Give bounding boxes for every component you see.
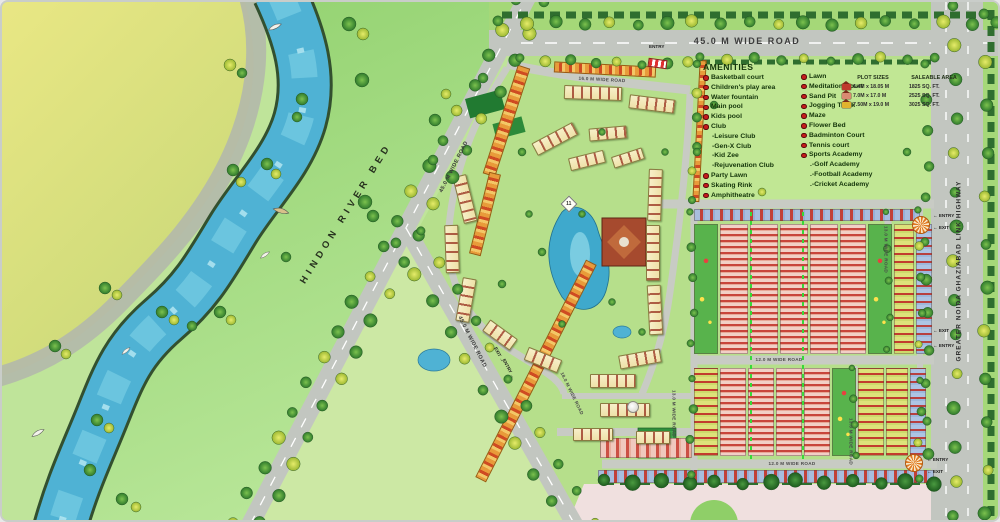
tree-icon (921, 379, 930, 388)
tree-icon (272, 431, 286, 445)
tree-icon (553, 459, 563, 469)
entry-sunburst-icon (912, 216, 930, 234)
legend-item: Party Lawn (703, 171, 801, 181)
tree-icon (287, 407, 297, 417)
tree-icon (763, 474, 779, 490)
legend-item: Tennis court (801, 141, 899, 151)
pocket-park (694, 224, 718, 354)
legend-item-label: Kids pool (711, 112, 742, 122)
tree-icon (604, 17, 615, 28)
legend-item-label: Basketball court (711, 73, 764, 83)
legend-item-label: Sand Pit (809, 92, 836, 102)
tree-icon (296, 93, 308, 105)
tree-icon (981, 239, 991, 249)
apartment-cluster (589, 125, 628, 141)
tree-icon (855, 17, 867, 29)
legend-item: -Kid Zee (703, 151, 801, 161)
tree-icon (707, 475, 720, 488)
river-label: HINDON RIVER BED (294, 134, 399, 292)
tree-icon (599, 129, 606, 136)
tree-icon (482, 49, 495, 62)
legend-item: -Leisure Club (703, 132, 801, 142)
tree-icon (951, 113, 963, 125)
tree-icon (538, 248, 546, 256)
legend-item: Skating Rink (703, 181, 801, 191)
tree-icon (924, 345, 934, 355)
entry-exit-label: ← ENTRY (933, 343, 954, 348)
tree-icon (598, 474, 610, 486)
legend-item: Water fountain (703, 93, 801, 103)
tree-icon (391, 215, 403, 227)
tree-icon (916, 273, 924, 281)
outside-south-strip (562, 484, 947, 522)
road-12m-south-label: 12.0 M WIDE ROAD (752, 461, 832, 466)
plot-band (694, 224, 932, 354)
tree-icon (638, 61, 647, 69)
tree-icon (948, 2, 958, 11)
legend-item-label: Main pool (711, 102, 743, 112)
tree-icon (345, 295, 359, 309)
tree-icon (495, 86, 507, 98)
tree-icon (169, 315, 179, 325)
top-road-label: 45.0 M WIDE ROAD (667, 36, 827, 46)
apartment-cluster (590, 374, 636, 388)
tree-icon (271, 169, 281, 179)
tree-icon (683, 57, 694, 68)
tree-icon (227, 518, 238, 522)
apartment-cluster (647, 285, 664, 336)
tree-icon (983, 465, 993, 475)
tree-icon (788, 472, 803, 487)
amenities-header: AMENITIES (703, 62, 801, 72)
legend-item-label: -Kid Zee (712, 151, 739, 161)
apartment-cluster (564, 85, 622, 101)
tree-icon (947, 510, 958, 521)
tree-icon (979, 9, 989, 19)
legend-item-label: Tennis court (809, 141, 849, 151)
tree-icon (399, 257, 410, 268)
tree-icon (516, 54, 525, 63)
tree-icon (478, 385, 488, 395)
tree-icon (826, 19, 839, 32)
tree-icon (930, 53, 939, 62)
tree-icon (693, 60, 701, 68)
tree-icon (591, 58, 601, 68)
legend-item-label: Amphitheatre (711, 191, 755, 201)
tree-icon (485, 343, 494, 352)
legend-item: Kids pool (703, 112, 801, 122)
south-wedge-field (244, 230, 581, 522)
tree-icon (451, 105, 462, 116)
plot-column (750, 224, 778, 354)
tree-icon (937, 15, 951, 29)
apartment-cluster (636, 431, 670, 444)
legend-item: -Gen-X Club (703, 142, 801, 152)
tree-icon (292, 112, 302, 122)
legend-item-label: Flower Bed (809, 121, 846, 131)
building-11-marker: 11 (561, 196, 578, 213)
tree-icon (521, 400, 532, 411)
tree-icon (915, 341, 922, 348)
rowhouse-strip (483, 65, 531, 177)
tree-icon (469, 79, 481, 91)
lagoon-pool (549, 207, 609, 309)
plot-column (858, 368, 884, 456)
plot-column (886, 368, 908, 456)
amenities-legend-col1: AMENITIES Basketball courtChildren's pla… (703, 62, 801, 200)
legend-item-label: Badminton Court (809, 131, 865, 141)
road-12m-mid-label: 12.0 M WIDE ROAD (739, 357, 819, 362)
tree-icon (687, 243, 696, 252)
entry-exit-label: ENTRY → (501, 358, 515, 379)
legend-bullet-icon (703, 173, 709, 179)
legend-bullet-icon (703, 75, 709, 81)
tree-icon (438, 136, 448, 146)
legend-item-label: Sports Academy (809, 150, 862, 160)
tree-icon (509, 54, 522, 67)
plot-column (720, 224, 748, 354)
apartment-cluster (452, 174, 477, 224)
tree-icon (237, 68, 247, 78)
tree-icon (689, 404, 698, 413)
entry-exit-label: ← ENTRY (927, 457, 948, 462)
tree-icon (827, 57, 836, 66)
tree-icon (686, 435, 694, 443)
tree-icon (61, 349, 71, 359)
clubhouse (602, 218, 646, 266)
legend-item-label: .-Cricket Academy (810, 180, 869, 190)
tree-icon (273, 489, 286, 502)
legend-item: Basketball court (703, 73, 801, 83)
tree-icon (918, 309, 926, 317)
building-11-number: 11 (566, 201, 571, 207)
tree-icon (559, 321, 566, 328)
tree-icon (99, 282, 111, 294)
plot-column (910, 368, 926, 456)
tree-icon (927, 477, 942, 492)
tree-icon (300, 377, 311, 388)
legend-item: .-Football Academy (801, 170, 899, 180)
tree-icon (365, 271, 375, 281)
plot-sizes-table: PLOT SIZES SALEABLE AREA 6.4M x 18.05 M1… (842, 75, 964, 108)
house-icon (842, 102, 851, 108)
tree-icon (518, 148, 526, 156)
tree-icon (498, 280, 506, 288)
boat-icon (273, 206, 290, 215)
plot-column (600, 438, 692, 458)
tree-icon (690, 309, 698, 317)
river-bed-green (62, 2, 522, 522)
tree-icon (303, 432, 313, 442)
road-13m-west-label: 13.0 M WIDE ROAD (672, 374, 677, 454)
apartment-cluster (611, 147, 645, 168)
road-18m-label: 18.0 M WIDE ROAD (552, 356, 592, 430)
saleable-area-header: SALEABLE AREA (904, 75, 964, 81)
tree-icon (540, 56, 551, 67)
apartment-cluster (531, 122, 578, 156)
tree-icon (662, 149, 669, 156)
tree-icon (853, 452, 860, 459)
road-16m-label: 16.0 M WIDE ROAD (562, 75, 642, 84)
tree-icon (254, 516, 266, 522)
legend-item: Maze (801, 111, 899, 121)
tree-icon (355, 73, 369, 87)
tree-icon (385, 289, 395, 299)
pond-west (418, 349, 450, 371)
tree-icon (978, 324, 991, 337)
tree-icon (683, 476, 697, 490)
plot-column (840, 224, 866, 354)
legend-bullet-icon (801, 94, 807, 100)
tree-icon (509, 437, 522, 450)
tree-icon (692, 88, 702, 98)
tree-icon (688, 196, 696, 204)
tree-icon (980, 99, 993, 112)
tree-icon (852, 53, 863, 64)
tree-icon (981, 417, 992, 428)
tree-icon (909, 19, 919, 29)
tree-icon (949, 441, 962, 454)
legend-bullet-icon (703, 124, 709, 130)
yellow-field (2, 2, 253, 376)
tree-icon (511, 2, 521, 5)
apartment-cluster (628, 94, 675, 114)
tree-icon (947, 401, 961, 415)
tree-icon (241, 487, 253, 499)
entry-exit-label: ← EXIT (933, 328, 949, 333)
south-green-mound (690, 500, 738, 522)
tree-icon (966, 18, 979, 31)
tree-icon (774, 19, 784, 29)
plot-column (748, 368, 774, 456)
legend-bullet-icon (801, 74, 807, 80)
legend-bullet-icon (801, 143, 807, 149)
apartment-cluster (647, 169, 663, 221)
legend-bullet-icon (801, 123, 807, 129)
tree-icon (687, 209, 694, 216)
apartment-cluster (600, 403, 650, 417)
tree-icon (550, 15, 563, 28)
tree-icon (523, 27, 537, 41)
site-master-plan: 11 45.0 M WIDE ROAD 45.0 M WIDE ROAD 45.… (0, 0, 1000, 522)
plot-size-value: 6.4M x 18.05 M (853, 84, 909, 90)
tree-icon (116, 493, 128, 505)
legend-item-label: Club (711, 122, 726, 132)
tree-icon (915, 241, 924, 250)
tree-icon (978, 507, 992, 521)
plot-column (810, 224, 838, 354)
tree-icon (922, 125, 933, 136)
tree-icon (982, 147, 994, 159)
boat-icon (259, 250, 270, 259)
tree-icon (471, 316, 481, 326)
tree-icon (883, 346, 889, 352)
tree-icon (429, 114, 441, 126)
legend-item-label: -Rejuvenation Club (712, 161, 774, 171)
legend-item-label: .-Golf Academy (810, 160, 860, 170)
plot-column (598, 470, 934, 483)
legend-item: Children's play area (703, 83, 801, 93)
tree-icon (948, 38, 962, 52)
tree-icon (493, 16, 503, 26)
tree-icon (318, 351, 330, 363)
tree-icon (423, 159, 437, 173)
spiral-sculpture-icon (627, 401, 639, 413)
tree-icon (579, 211, 586, 218)
tree-icon (924, 161, 934, 171)
green-walkway (750, 212, 752, 464)
legend-item: Sports Academy (801, 150, 899, 160)
tree-icon (639, 329, 646, 336)
legend-bullet-icon (801, 153, 807, 159)
plot-column (804, 368, 830, 456)
tree-icon (445, 326, 457, 338)
tree-icon (287, 457, 301, 471)
legend-bullet-icon (801, 104, 807, 110)
saleable-area-value: 2525 SQ. FT. (909, 93, 940, 99)
pond-east (613, 326, 631, 338)
tree-icon (350, 346, 363, 359)
legend-item-label: Party Lawn (711, 171, 747, 181)
tree-icon (948, 147, 959, 158)
saleable-area-value: 1825 SQ. FT. (909, 84, 940, 90)
legend-item: -Rejuvenation Club (703, 161, 801, 171)
saleable-area-value: 3025 SQ. FT. (909, 102, 940, 108)
tree-icon (917, 377, 924, 384)
boat-icon (121, 346, 131, 355)
tree-icon (452, 284, 463, 295)
tree-icon (915, 207, 922, 214)
north-verge (489, 2, 1000, 30)
tree-icon (527, 469, 539, 481)
legend-item-label: Maze (809, 111, 826, 121)
tree-icon (687, 471, 695, 479)
tree-icon (539, 2, 549, 7)
tree-icon (991, 16, 1000, 28)
tree-icon (364, 314, 378, 328)
tree-icon (342, 17, 356, 31)
tree-icon (156, 306, 168, 318)
tree-icon (903, 148, 911, 156)
tree-icon (391, 238, 401, 248)
legend-item: Badminton Court (801, 131, 899, 141)
plot-column (894, 224, 914, 354)
tree-icon (921, 238, 930, 247)
tree-icon (914, 438, 922, 446)
hindon-river (59, 2, 305, 522)
legend-item-label: -Gen-X Club (712, 142, 751, 152)
diagonal-south-road-label: 45.0 M WIDE ROAD (447, 296, 498, 388)
tree-icon (897, 473, 913, 489)
tree-icon (317, 400, 328, 411)
tree-icon (227, 164, 239, 176)
tree-icon (875, 52, 886, 63)
tree-icon (979, 373, 991, 385)
tree-icon (693, 148, 701, 156)
tree-icon (496, 23, 510, 37)
tree-icon (261, 158, 273, 170)
plot-band (598, 470, 934, 483)
tree-icon (950, 476, 962, 488)
tree-icon (104, 423, 114, 433)
tree-icon (692, 142, 701, 151)
diagonal-road-north (243, 2, 531, 522)
tree-icon (922, 307, 933, 318)
tree-icon (737, 478, 749, 490)
apartment-cluster (646, 225, 660, 281)
tree-icon (849, 365, 855, 371)
tree-icon (979, 191, 990, 202)
tree-icon (214, 306, 226, 318)
plot-size-row: 6.4M x 18.05 M1825 SQ. FT. (842, 84, 964, 90)
tree-icon (405, 185, 418, 198)
tree-icon (917, 407, 926, 416)
legend-bullet-icon (703, 183, 709, 189)
tree-icon (688, 273, 696, 281)
apartment-cluster (573, 428, 613, 441)
tree-icon (923, 448, 934, 459)
plot-band (600, 438, 692, 458)
plot-size-row: 7.50M x 19.0 M3025 SQ. FT. (842, 102, 964, 108)
tree-icon (187, 321, 197, 331)
legend-bullet-icon (703, 85, 709, 91)
tree-icon (692, 113, 702, 123)
tree-icon (236, 177, 246, 187)
plot-sizes-header: PLOT SIZES (842, 75, 904, 81)
apartment-cluster (482, 319, 518, 350)
diagonal-road-south (406, 228, 583, 522)
legend-item-label: Skating Rink (711, 181, 752, 191)
tree-icon (336, 373, 348, 385)
tree-icon (591, 518, 600, 522)
tree-icon (408, 268, 422, 282)
tree-icon (535, 427, 546, 438)
legend-item: .-Golf Academy (801, 160, 899, 170)
tree-icon (903, 55, 913, 65)
plot-column (916, 224, 932, 354)
legend-bullet-icon (703, 114, 709, 120)
apartment-cluster (618, 348, 662, 369)
tree-icon (654, 473, 669, 488)
tree-icon (921, 274, 932, 285)
road-13m-east-label: 13.0 M WIDE ROAD (884, 210, 889, 290)
tree-icon (332, 326, 345, 339)
legend-item: Amphitheatre (703, 191, 801, 201)
legend-item-label: .-Football Academy (810, 170, 872, 180)
tree-icon (413, 229, 425, 241)
entry-exit-label: ← ENTRY (933, 213, 954, 218)
tree-icon (428, 155, 438, 165)
tree-icon (880, 15, 891, 26)
tree-icon (112, 290, 122, 300)
highway-label: GREATER NOIDA GHAZIABAD LINK HIGHWAY (956, 202, 963, 362)
tree-icon (226, 315, 236, 325)
tree-icon (378, 241, 389, 252)
tree-icon (526, 211, 533, 218)
river-bank-path (2, 2, 256, 378)
tree-icon (817, 476, 831, 490)
entry-sunburst-icon (905, 454, 923, 472)
tree-icon (609, 299, 616, 306)
plot-column (694, 368, 718, 456)
legend-bullet-icon (801, 84, 807, 90)
tree-icon (520, 17, 534, 31)
tree-icon (661, 16, 675, 30)
tree-icon (281, 252, 291, 262)
tree-icon (91, 414, 103, 426)
tree-icon (687, 340, 694, 347)
legend-bullet-icon (801, 113, 807, 119)
